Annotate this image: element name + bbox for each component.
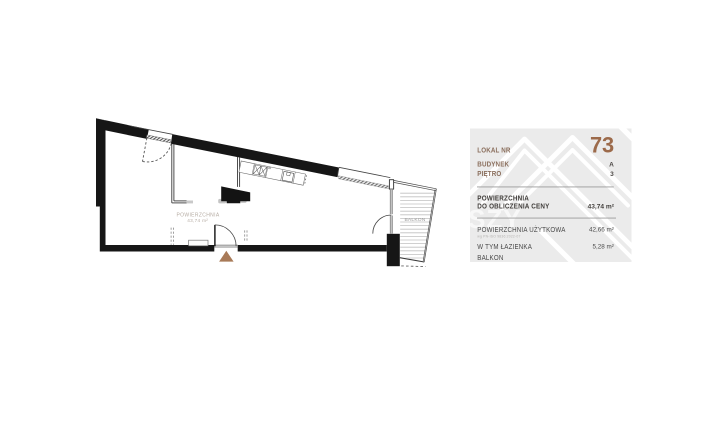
svg-text:43,74 m²: 43,74 m² — [187, 218, 208, 223]
svg-text:73: 73 — [590, 132, 614, 157]
svg-text:LOKAL NR: LOKAL NR — [477, 147, 510, 155]
svg-text:POWIERZCHNIA: POWIERZCHNIA — [477, 195, 529, 203]
svg-text:42,66 m²: 42,66 m² — [589, 227, 614, 234]
svg-text:W TYM ŁAZIENKA: W TYM ŁAZIENKA — [477, 243, 532, 251]
svg-text:43,74 m²: 43,74 m² — [588, 204, 615, 211]
svg-text:BUDYNEK: BUDYNEK — [477, 161, 509, 169]
svg-text:DO OBLICZENIA CENY: DO OBLICZENIA CENY — [477, 203, 549, 211]
svg-text:5,28 m²: 5,28 m² — [592, 244, 613, 251]
svg-text:wg PN-ISO 9836:2022-07: wg PN-ISO 9836:2022-07 — [477, 235, 520, 239]
svg-text:PIĘTRO: PIĘTRO — [477, 171, 502, 179]
svg-text:POWIERZCHNIA UŻYTKOWA: POWIERZCHNIA UŻYTKOWA — [477, 224, 565, 234]
svg-text:BALKON: BALKON — [404, 217, 425, 223]
svg-text:A: A — [609, 162, 614, 169]
svg-text:BALKON: BALKON — [477, 254, 503, 262]
svg-text:3: 3 — [610, 171, 614, 178]
